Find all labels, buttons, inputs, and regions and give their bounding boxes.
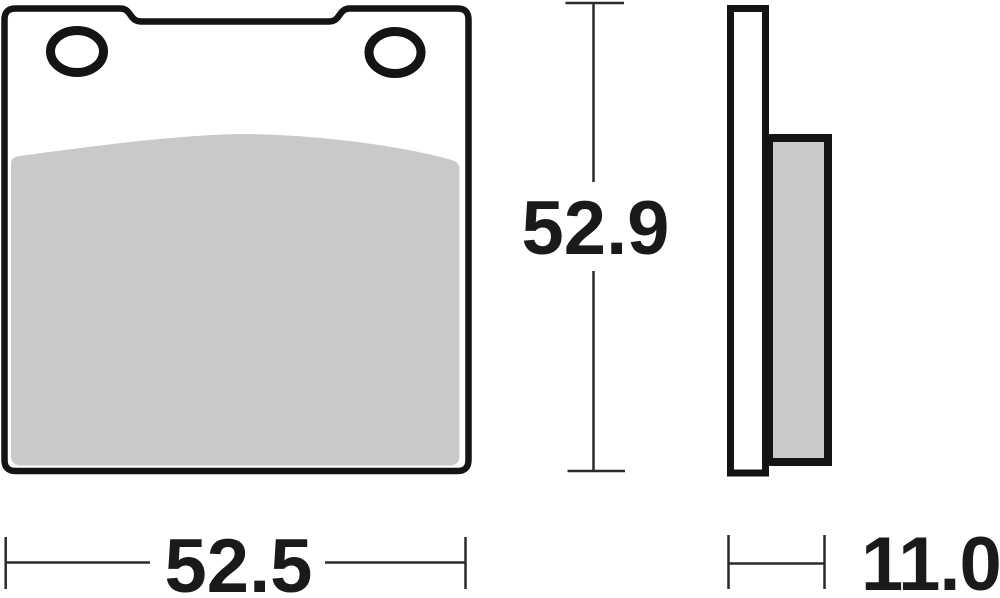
svg-text:52.9: 52.9 xyxy=(522,186,670,271)
svg-text:52.5: 52.5 xyxy=(165,524,313,598)
svg-text:11.0: 11.0 xyxy=(861,522,1000,598)
